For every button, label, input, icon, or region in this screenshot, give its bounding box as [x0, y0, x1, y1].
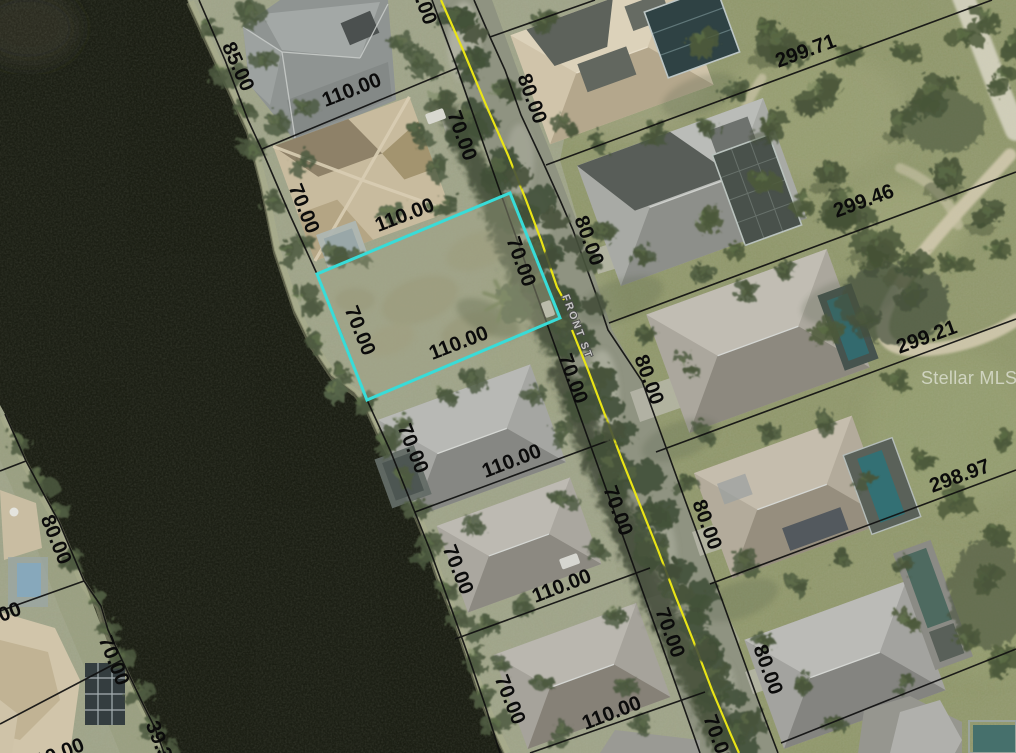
svg-text:Stellar MLS: Stellar MLS [921, 368, 1016, 388]
